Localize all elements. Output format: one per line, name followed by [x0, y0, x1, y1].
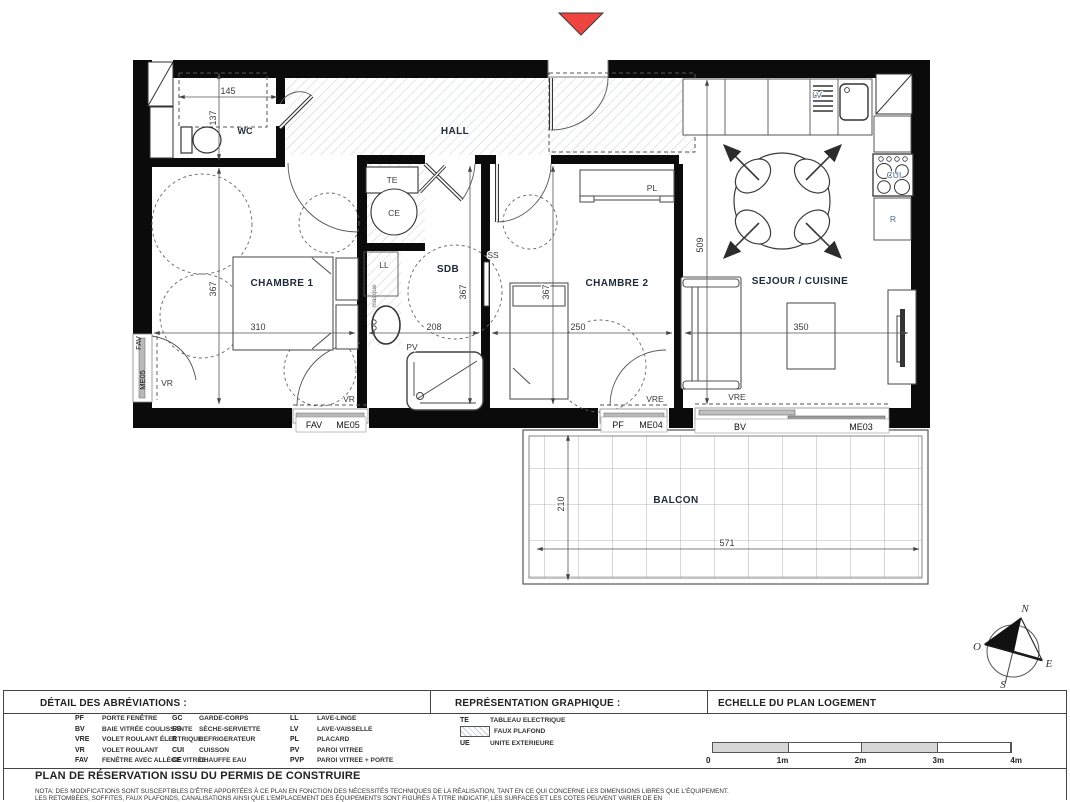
representation-row-te: TE TABLEAU ELECTRIQUE	[460, 715, 565, 726]
entry-threshold	[548, 60, 608, 78]
legend-abbreviation-row: CUICUISSON	[172, 747, 260, 758]
legend-right-border	[1066, 690, 1067, 800]
abbreviation-code: LV	[290, 726, 317, 733]
room-label-sdb: SDB	[437, 264, 459, 275]
abbreviation-code: PF	[75, 715, 102, 722]
room-label-balcon: BALCON	[653, 495, 698, 506]
plan-title: PLAN DE RÉSERVATION ISSU DU PERMIS DE CO…	[35, 770, 361, 782]
nota-line-1: NOTA: DES MODIFICATIONS SONT SUSCEPTIBLE…	[35, 788, 729, 795]
window-bv-sejour: BV	[734, 422, 746, 432]
legend-abbreviation-row: PLPLACARD	[290, 736, 393, 747]
scale-tick-label: 4m	[1010, 756, 1022, 765]
representation-title: REPRÉSENTATION GRAPHIQUE :	[455, 698, 620, 709]
abbreviation-column-2: GCGARDE-CORPSSSSÈCHE-SERVIETTERREFRIGERA…	[172, 715, 260, 768]
label-vr-left: VR	[161, 378, 173, 388]
compass-east: E	[1045, 658, 1053, 670]
legend-abbreviation-row: SSSÈCHE-SERVIETTE	[172, 726, 260, 737]
te-abbr: TE	[460, 717, 490, 724]
dim-wc-width: 145	[220, 86, 235, 96]
scale-bar	[712, 742, 1012, 753]
wc-toilet	[181, 127, 221, 153]
dining-table	[725, 146, 840, 257]
entrance-marker-icon	[559, 13, 603, 35]
scale-segment	[788, 743, 863, 752]
legend-abbreviation-row: GCGARDE-CORPS	[172, 715, 260, 726]
abbreviations-title: DÉTAIL DES ABRÉVIATIONS :	[40, 698, 187, 709]
window-me03-sejour: ME03	[849, 422, 873, 432]
abbreviation-description: PAROI VITREE + PORTE	[317, 757, 393, 764]
legend-top-border	[3, 690, 1067, 691]
compass-south: S	[1000, 679, 1006, 690]
abbreviation-description: VOLET ROULANT	[102, 747, 158, 754]
legend-abbreviation-row: LVLAVE-VAISSELLE	[290, 726, 393, 737]
label-lv: LV	[812, 90, 822, 100]
te-desc: TABLEAU ELECTRIQUE	[490, 717, 565, 724]
label-vr-ch1: VR	[343, 394, 355, 404]
abbreviation-code: PV	[290, 747, 317, 754]
legend-abbreviation-row: PVPPAROI VITREE + PORTE	[290, 757, 393, 768]
label-vr-ch2: VRE	[646, 394, 664, 404]
floor-plan-drawing: 145 137 367 310 367 208 367 250 509 350 …	[0, 0, 1070, 690]
abbreviation-code: FAV	[75, 757, 102, 764]
abbreviation-code: PVP	[290, 757, 317, 764]
legend-divider-2	[707, 690, 708, 713]
scale-tick-label: 3m	[933, 756, 945, 765]
label-ll: LL	[379, 260, 389, 270]
legend-left-border	[3, 690, 4, 800]
abbreviation-description: LAVE-LINGE	[317, 715, 356, 722]
dim-ch1-height: 367	[208, 281, 218, 296]
dim-wc-height: 137	[208, 110, 218, 125]
label-r: R	[890, 214, 896, 224]
legend-abbreviation-row: CECHAUFFE EAU	[172, 757, 260, 768]
room-label-chambre1: CHAMBRE 1	[250, 278, 313, 289]
room-label-sejour: SEJOUR / CUISINE	[752, 276, 848, 287]
abbreviation-description: SÈCHE-SERVIETTE	[199, 726, 260, 733]
nota-line-2: LES RETOMBÉES, SOFFITES, FAUX PLAFONDS, …	[35, 795, 662, 802]
label-vre-sejour: VRE	[728, 392, 746, 402]
abbreviation-code: VR	[75, 747, 102, 754]
legend-abbreviation-row: RREFRIGERATEUR	[172, 736, 260, 747]
abbreviation-description: PORTE FENÊTRE	[102, 715, 157, 722]
scale-segment	[937, 743, 1012, 752]
abbreviation-column-3: LLLAVE-LINGELVLAVE-VAISSELLEPLPLACARDPVP…	[290, 715, 393, 768]
window-pf-ch2: PF	[612, 420, 624, 430]
label-masque: masque	[371, 284, 378, 308]
scale-labels: 01m2m3m4m	[706, 756, 1022, 765]
legend-bottom-rule	[3, 768, 1067, 769]
abbreviation-description: PAROI VITREE	[317, 747, 363, 754]
label-pv: PV	[406, 342, 418, 352]
abbreviation-description: GARDE-CORPS	[199, 715, 248, 722]
abbreviation-code: R	[172, 736, 199, 743]
scale-tick-label: 2m	[855, 756, 867, 765]
abbreviation-code: LL	[290, 715, 317, 722]
compass-rose: N S O E	[973, 603, 1053, 690]
dim-balcon-depth: 210	[556, 496, 566, 511]
scale-tick-label: 0	[706, 756, 710, 765]
room-label-chambre2: CHAMBRE 2	[585, 278, 648, 289]
window-me05-left: ME05	[138, 370, 147, 390]
room-label-wc: WC	[238, 126, 253, 136]
scale-title: ECHELLE DU PLAN LOGEMENT	[718, 698, 876, 709]
window-me04-ch2: ME04	[639, 420, 663, 430]
ue-abbr: UE	[460, 740, 490, 747]
floor-plan-page: { "colors": { "entrance_marker": "#ef454…	[0, 0, 1070, 800]
legend-header-underline	[3, 713, 1067, 714]
compass-west: O	[973, 641, 981, 653]
bedroom1-furniture	[233, 257, 358, 350]
dim-sejour-height: 509	[695, 237, 705, 252]
abbreviation-code: GC	[172, 715, 199, 722]
dim-sejour-width: 350	[793, 322, 808, 332]
legend-abbreviation-row: PVPAROI VITREE	[290, 747, 393, 758]
dim-balcon-width: 571	[719, 538, 734, 548]
representation-row-ue: UE UNITE EXTERIEURE	[460, 738, 554, 749]
dim-ch2-width: 250	[570, 322, 585, 332]
label-ss: SS	[487, 250, 499, 260]
legend-divider-1	[430, 690, 431, 713]
room-label-hall: HALL	[441, 126, 469, 137]
dim-sdb-height: 367	[458, 284, 468, 299]
label-te: TE	[387, 175, 398, 185]
abbreviation-description: CHAUFFE EAU	[199, 757, 246, 764]
scale-tick-label: 1m	[777, 756, 789, 765]
balcony	[523, 430, 928, 584]
dim-ch2-height: 367	[541, 284, 551, 299]
abbreviation-code: CUI	[172, 747, 199, 754]
faux-plafond-swatch-icon	[460, 726, 490, 737]
abbreviation-code: SS	[172, 726, 199, 733]
abbreviation-code: BV	[75, 726, 102, 733]
abbreviation-description: LAVE-VAISSELLE	[317, 726, 372, 733]
faux-plafond-desc: FAUX PLAFOND	[494, 728, 545, 735]
scale-segment	[713, 743, 788, 752]
abbreviation-description: PLACARD	[317, 736, 349, 743]
abbreviation-description: CUISSON	[199, 747, 229, 754]
abbreviation-description: REFRIGERATEUR	[199, 736, 255, 743]
window-me05-ch1: ME05	[336, 420, 360, 430]
scale-segment	[862, 743, 937, 752]
label-ce: CE	[388, 208, 400, 218]
ue-desc: UNITE EXTERIEURE	[490, 740, 554, 747]
window-fav-ch1: FAV	[306, 420, 322, 430]
abbreviation-code: VRE	[75, 736, 102, 743]
dim-ch1-width: 310	[250, 322, 265, 332]
label-cui: CUI	[887, 170, 902, 180]
legend-abbreviation-row: LLLAVE-LINGE	[290, 715, 393, 726]
window-fav-left: FAV	[134, 336, 143, 350]
abbreviation-code: CE	[172, 757, 199, 764]
compass-north: N	[1020, 603, 1029, 615]
dim-sdb-width: 208	[426, 322, 441, 332]
abbreviation-code: PL	[290, 736, 317, 743]
label-pl: PL	[647, 183, 658, 193]
representation-row-faux-plafond: FAUX PLAFOND	[460, 726, 545, 737]
